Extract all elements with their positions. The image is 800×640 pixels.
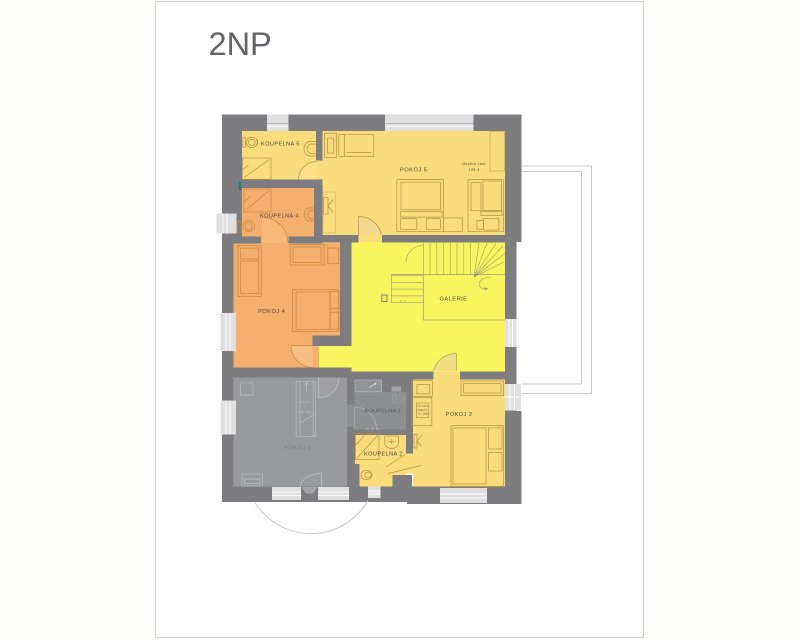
svg-text:Obytná část: Obytná část [462, 162, 486, 166]
svg-text:POKOJ 2: POKOJ 2 [446, 412, 473, 418]
svg-text:KOUPELNA 1: KOUPELNA 1 [365, 409, 402, 415]
svg-text:L: L [304, 405, 306, 409]
svg-text:pudu 9kg: pudu 9kg [298, 410, 311, 414]
svg-text:109,4: 109,4 [469, 168, 480, 172]
svg-text:vylez na: vylez na [298, 400, 310, 404]
svg-text:POKOJ 5: POKOJ 5 [400, 168, 427, 174]
svg-text:KOUPELNA 5: KOUPELNA 5 [261, 142, 300, 148]
svg-text:POKOJ 3: POKOJ 3 [284, 446, 311, 452]
svg-text:2NP: 2NP [209, 26, 272, 62]
svg-text:POKOJ 4: POKOJ 4 [258, 309, 286, 315]
svg-text:TV 165l: TV 165l [417, 412, 428, 416]
svg-text:KOUPELNA 2: KOUPELNA 2 [364, 452, 403, 458]
svg-text:GALERIE: GALERIE [440, 297, 468, 303]
svg-text:KOUPELNA 4: KOUPELNA 4 [260, 214, 299, 220]
